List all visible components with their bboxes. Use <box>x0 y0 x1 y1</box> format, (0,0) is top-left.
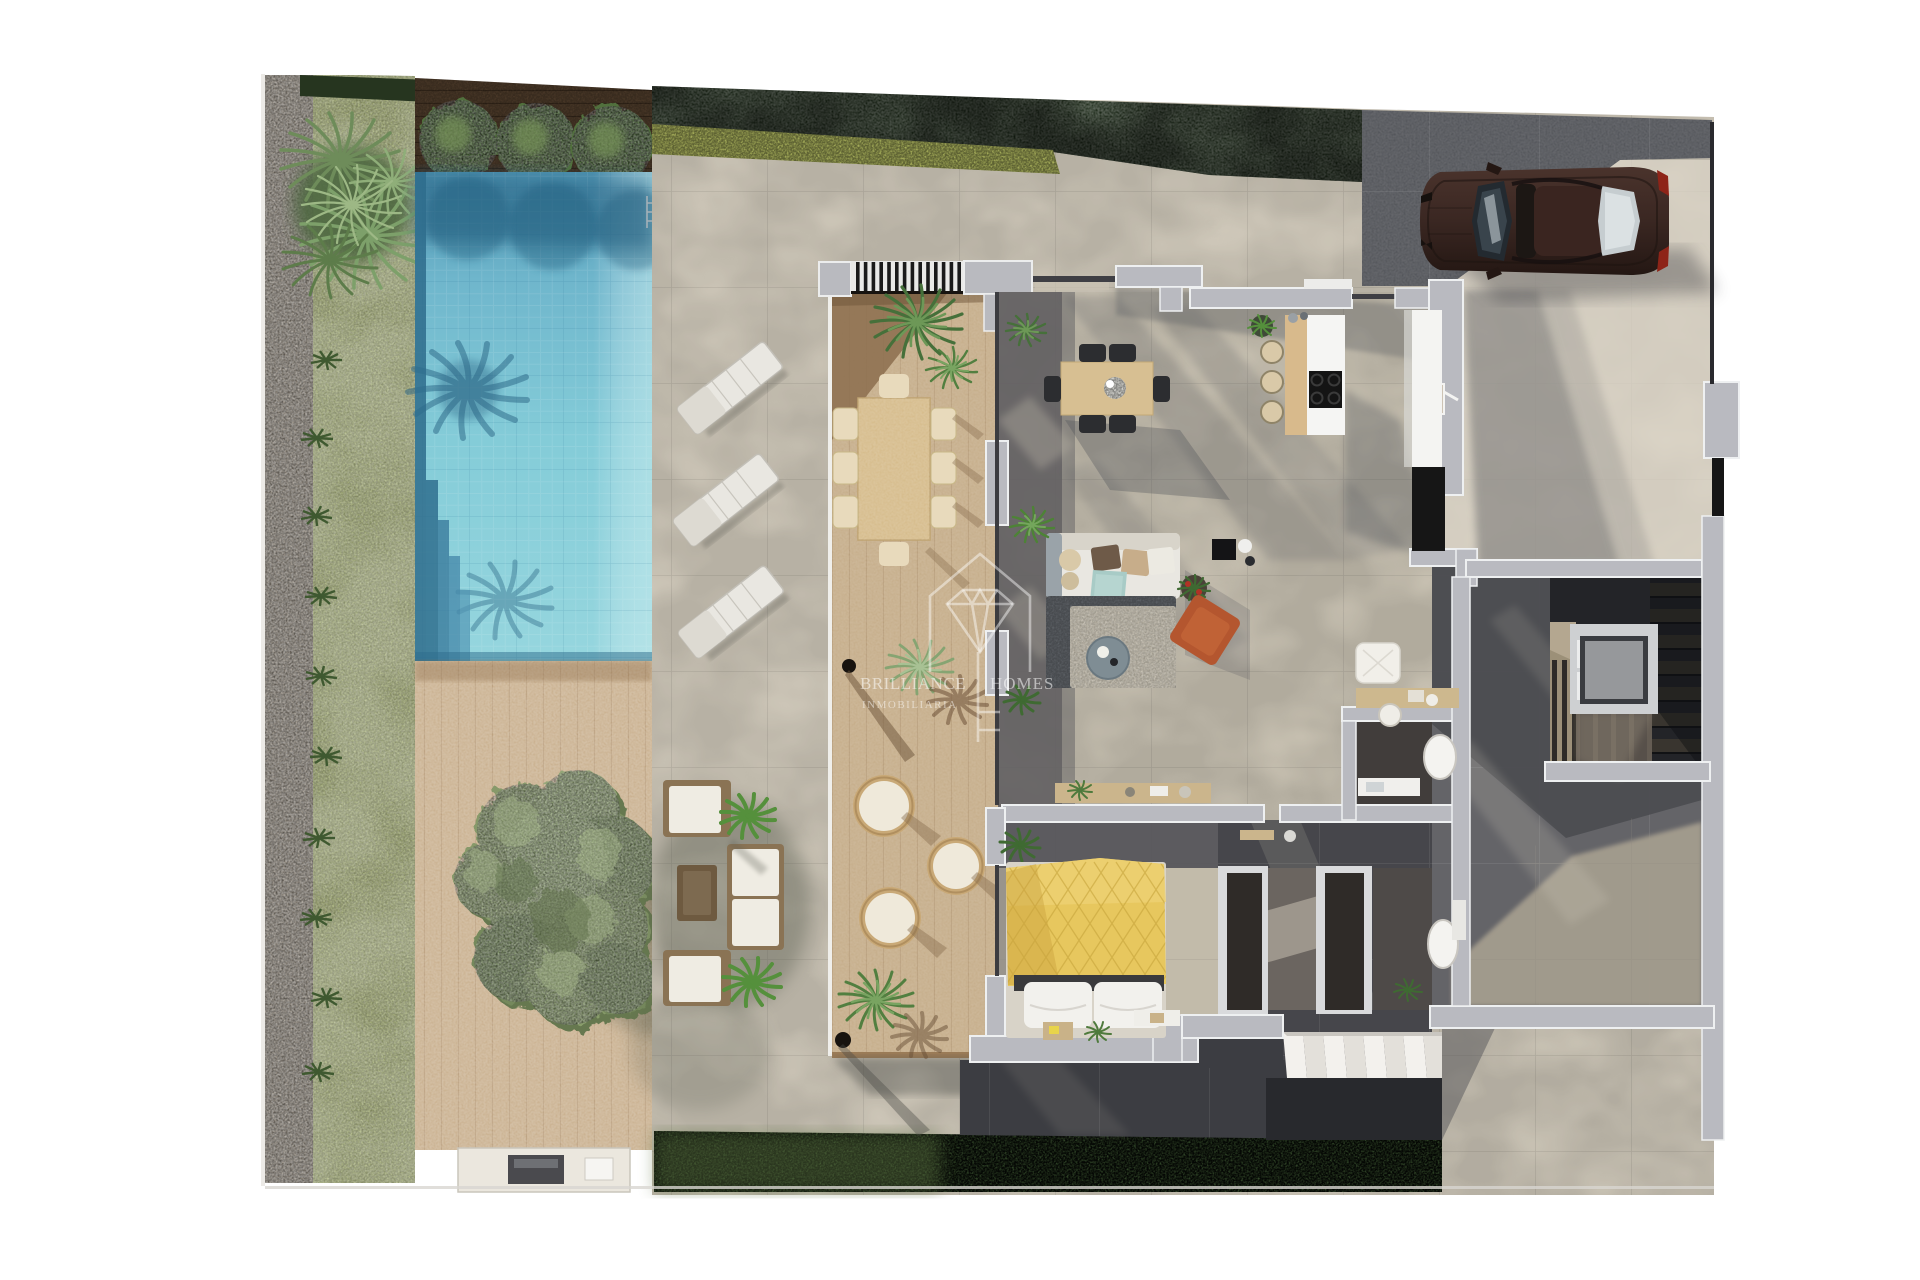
svg-text:HOMES: HOMES <box>990 674 1055 693</box>
svg-text:INMOBILIARIA: INMOBILIARIA <box>862 699 958 711</box>
svg-text:BRILLIANCE: BRILLIANCE <box>860 674 966 693</box>
